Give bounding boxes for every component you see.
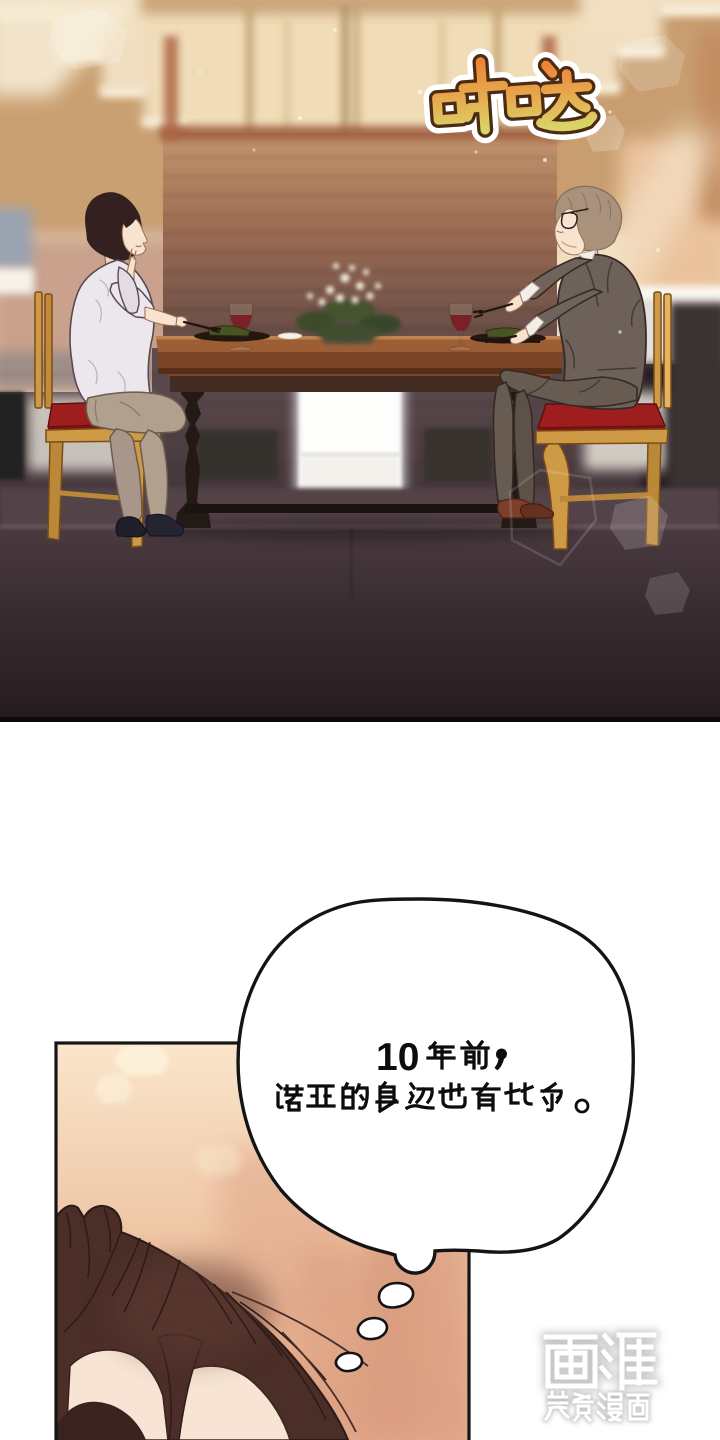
- svg-text:10: 10: [376, 1036, 419, 1079]
